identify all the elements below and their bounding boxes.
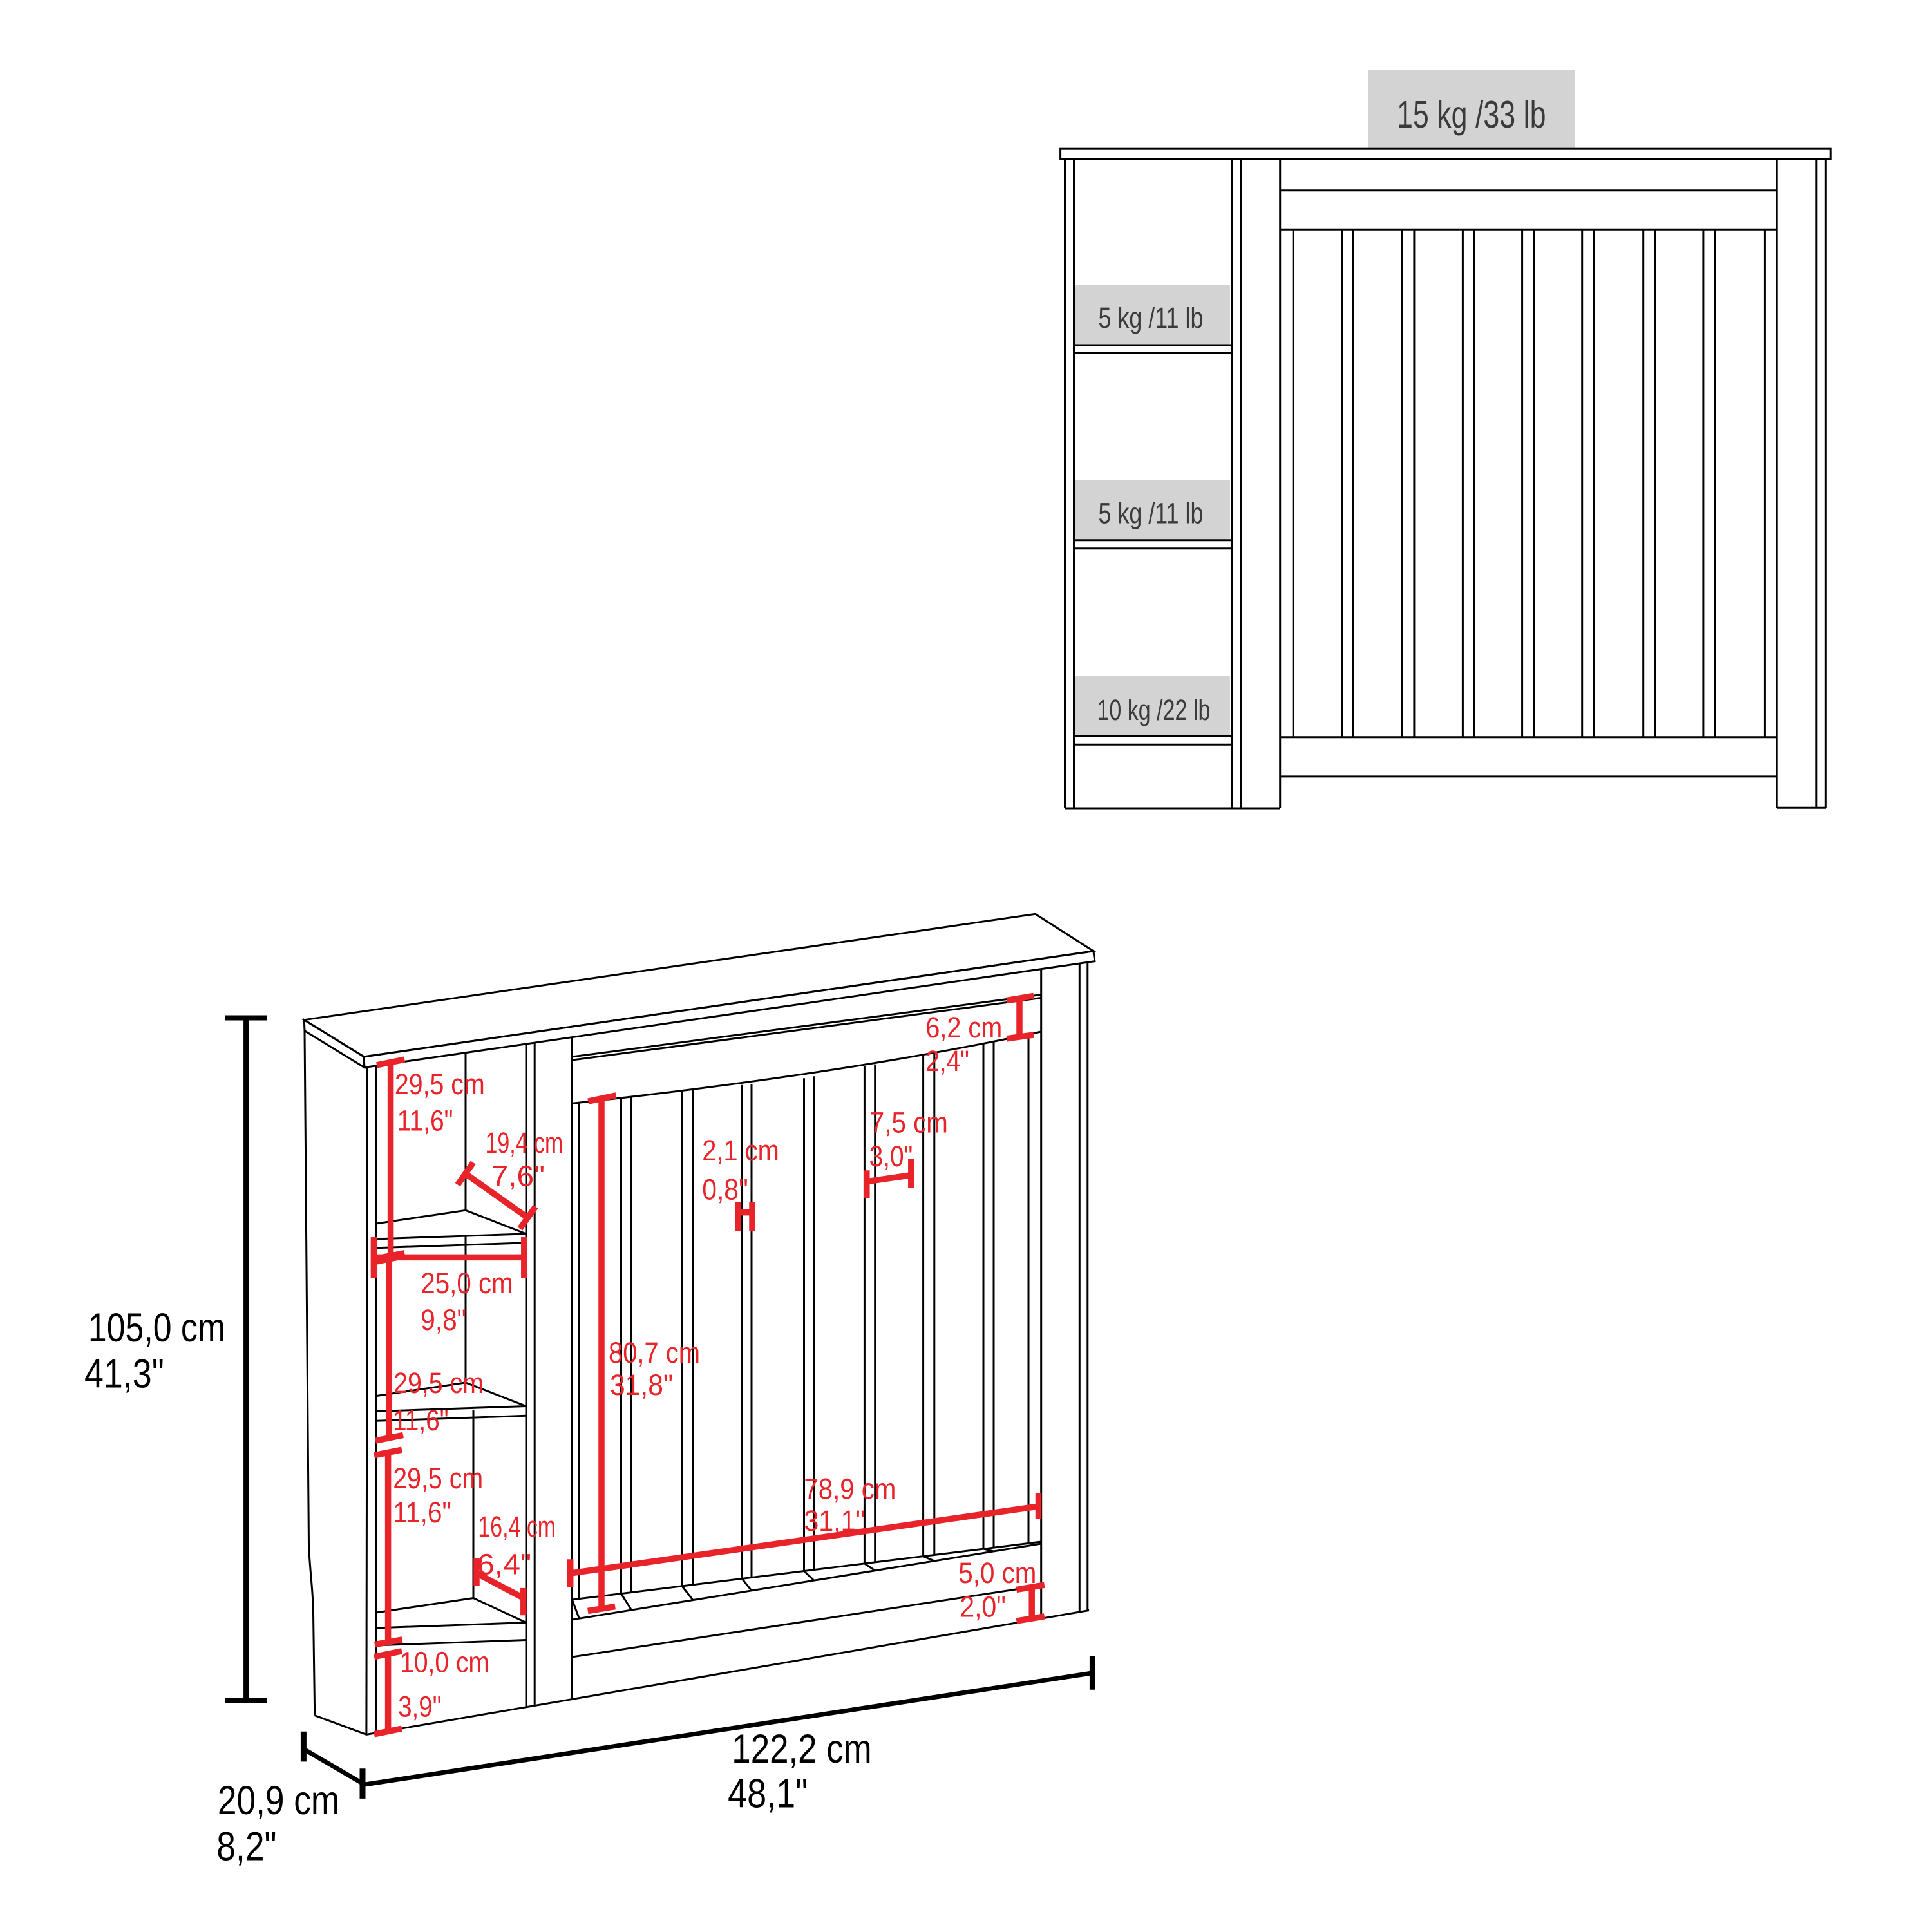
svg-text:2,1 cm: 2,1 cm: [702, 1134, 779, 1167]
svg-text:31,8": 31,8": [610, 1368, 673, 1401]
svg-text:8,2": 8,2": [216, 1824, 276, 1870]
svg-text:25,0 cm: 25,0 cm: [421, 1267, 513, 1300]
svg-text:10 kg /22 lb: 10 kg /22 lb: [1097, 694, 1210, 726]
svg-text:19,4 cm: 19,4 cm: [486, 1126, 563, 1159]
svg-text:7,5 cm: 7,5 cm: [870, 1106, 948, 1139]
svg-text:2,0": 2,0": [960, 1591, 1005, 1624]
svg-text:105,0 cm: 105,0 cm: [88, 1305, 225, 1350]
svg-text:6,4": 6,4": [477, 1548, 531, 1580]
svg-text:9,8": 9,8": [421, 1303, 466, 1336]
svg-text:5 kg /11 lb: 5 kg /11 lb: [1099, 301, 1204, 334]
svg-text:3,9": 3,9": [398, 1690, 441, 1723]
svg-text:80,7 cm: 80,7 cm: [609, 1336, 700, 1369]
svg-text:29,5 cm: 29,5 cm: [393, 1462, 483, 1495]
svg-text:15 kg /33 lb: 15 kg /33 lb: [1397, 93, 1546, 136]
svg-text:2,4": 2,4": [925, 1045, 969, 1077]
svg-text:29,5 cm: 29,5 cm: [393, 1367, 484, 1399]
svg-text:41,3": 41,3": [84, 1351, 164, 1396]
svg-text:16,4 cm: 16,4 cm: [478, 1510, 556, 1543]
svg-text:11,6": 11,6": [393, 1404, 449, 1437]
svg-text:122,2 cm: 122,2 cm: [732, 1727, 871, 1772]
svg-text:7,6": 7,6": [491, 1160, 545, 1193]
svg-text:6,2 cm: 6,2 cm: [925, 1011, 1002, 1044]
svg-text:48,1": 48,1": [728, 1772, 808, 1817]
svg-text:11,6": 11,6": [393, 1496, 451, 1529]
svg-text:78,9 cm: 78,9 cm: [804, 1472, 896, 1505]
svg-text:3,0": 3,0": [869, 1140, 913, 1173]
svg-text:5,0 cm: 5,0 cm: [958, 1557, 1036, 1589]
svg-text:31,1": 31,1": [804, 1504, 865, 1537]
svg-text:5 kg /11 lb: 5 kg /11 lb: [1099, 497, 1204, 529]
svg-text:11,6": 11,6": [397, 1104, 453, 1137]
svg-text:29,5 cm: 29,5 cm: [395, 1068, 485, 1101]
svg-text:10,0 cm: 10,0 cm: [400, 1646, 489, 1679]
svg-text:20,9 cm: 20,9 cm: [218, 1778, 339, 1823]
svg-text:0,8": 0,8": [702, 1173, 748, 1206]
